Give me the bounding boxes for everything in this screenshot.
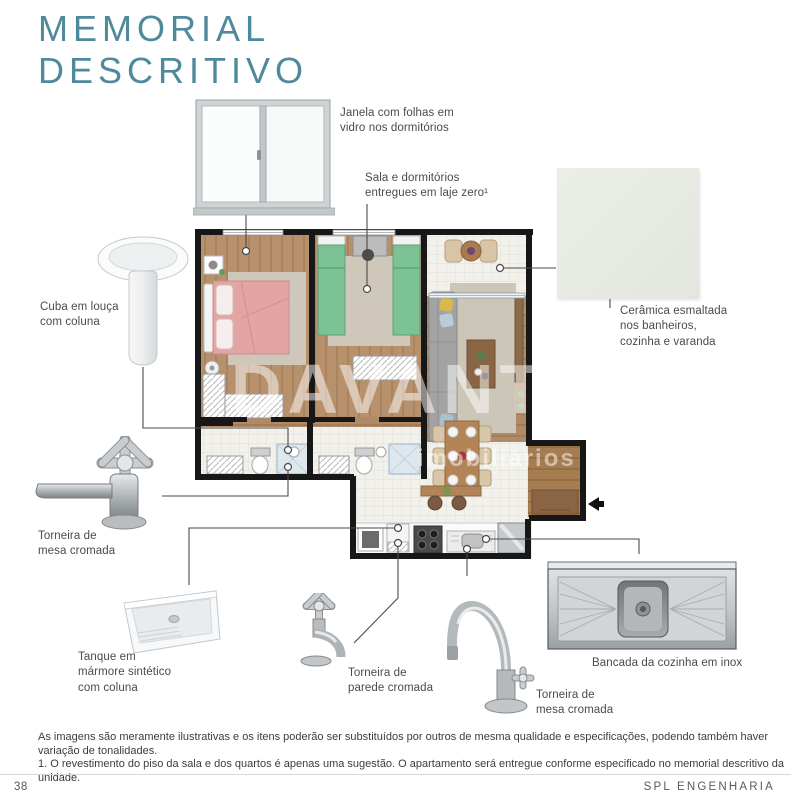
bathroom-faucet-image: [30, 436, 165, 531]
floor-plan-illustration: DAVANTI imobiliários: [195, 228, 607, 562]
watermark-line1: DAVANTI: [231, 350, 574, 428]
callout-label-wall-faucet: Torneira de parede cromada: [348, 666, 433, 697]
window-image: [193, 98, 335, 220]
callout-label-slab: Sala e dormitórios entregues em laje zer…: [365, 171, 488, 202]
page-title: MEMORIAL DESCRITIVO: [38, 8, 308, 92]
callout-label-tank: Tanque em mármore sintético com coluna: [78, 650, 171, 696]
balcony-furniture: [445, 240, 497, 262]
callout-label-ceramic: Cerâmica esmaltada nos banheiros, cozinh…: [620, 304, 727, 350]
callout-label-basin: Cuba em louça com coluna: [40, 300, 119, 331]
watermark-line2: imobiliários: [417, 445, 576, 472]
brand-name: SPL ENGENHARIA: [644, 781, 775, 793]
ceramic-tile-swatch: [557, 168, 699, 298]
stainless-bench-image: [546, 560, 740, 655]
entry-furniture: [532, 490, 578, 514]
callout-label-kitchen-faucet: Torneira de mesa cromada: [536, 688, 613, 719]
callout-label-window: Janela com folhas em vidro nos dormitóri…: [340, 106, 454, 137]
callout-label-bath-faucet: Torneira de mesa cromada: [38, 529, 115, 560]
kitchen-counter: [355, 523, 527, 554]
callout-label-bench: Bancada da cozinha em inox: [592, 656, 742, 671]
footer-divider: [0, 774, 791, 775]
disclaimer-text: As imagens são meramente ilustrativas e …: [38, 730, 790, 758]
brochure-page: MEMORIAL DESCRITIVO: [0, 0, 791, 805]
wall-faucet-image: [286, 593, 352, 667]
entry-arrow-icon: [588, 497, 604, 511]
page-number: 38: [14, 781, 28, 793]
kitchen-faucet-image: [432, 572, 537, 717]
